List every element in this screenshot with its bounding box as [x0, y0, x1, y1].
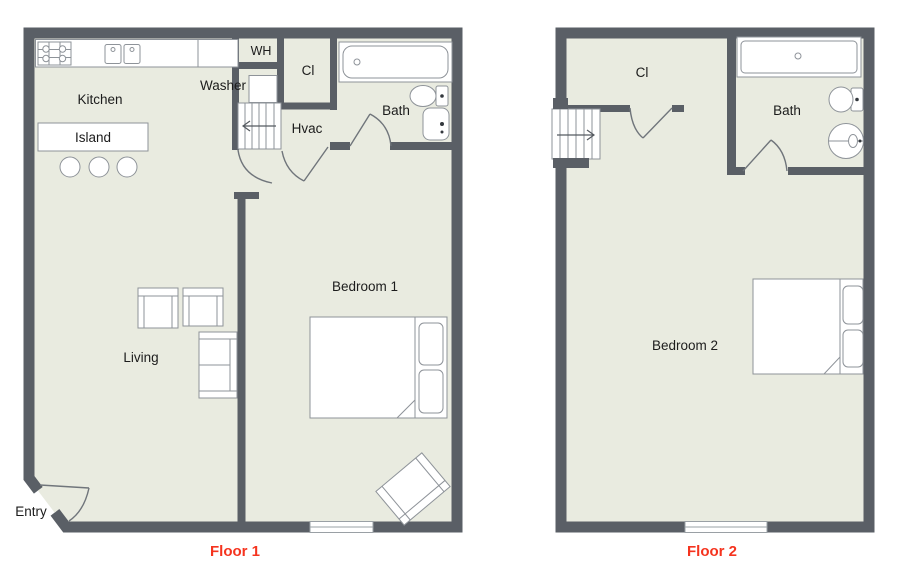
- kitchen-counter: [36, 40, 239, 68]
- kitchen-label: Kitchen: [77, 92, 122, 107]
- stool-icon: [60, 157, 80, 177]
- floorplan-canvas: Kitchen Island Washer WH Cl Hvac Bath Be…: [0, 0, 900, 577]
- bathtub-icon: [339, 42, 452, 82]
- stove-icon: [38, 42, 71, 65]
- floor-1-plan: Kitchen Island Washer WH Cl Hvac Bath Be…: [15, 28, 457, 560]
- bed-floor1-icon: [310, 317, 447, 418]
- toilet-floor1-icon: [410, 86, 448, 107]
- stool-icon: [89, 157, 109, 177]
- sink-floor2-icon: [829, 124, 864, 159]
- living-label: Living: [123, 350, 158, 365]
- floor-2-plan: Cl Bath Bedroom 2 Floor 2: [552, 28, 869, 560]
- bath-label: Bath: [382, 103, 410, 118]
- sink-floor1-icon: [423, 108, 449, 140]
- stairs-floor1-icon: [238, 103, 281, 149]
- wall-stub: [553, 98, 568, 109]
- floor1-caption: Floor 1: [210, 543, 260, 560]
- vanity-tub-icon: [737, 37, 861, 77]
- window-floor1-icon: [310, 522, 373, 533]
- bedroom1-label: Bedroom 1: [332, 279, 398, 294]
- washer-label: Washer: [200, 78, 247, 93]
- bedroom2-label: Bedroom 2: [652, 338, 718, 353]
- armchair-icon: [138, 288, 178, 328]
- window-floor2-icon: [685, 522, 767, 533]
- water-heater-label: WH: [251, 44, 272, 58]
- bath2-label: Bath: [773, 103, 801, 118]
- loveseat-icon: [199, 332, 237, 398]
- stool-icon: [117, 157, 137, 177]
- floorplan-svg: Kitchen Island Washer WH Cl Hvac Bath Be…: [0, 0, 900, 577]
- armchair-icon: [183, 288, 223, 326]
- floor2-caption: Floor 2: [687, 543, 737, 560]
- washer-icon: [249, 76, 277, 103]
- island-label: Island: [75, 130, 111, 145]
- stairs-floor2-icon: [552, 98, 600, 168]
- closet-label: Cl: [302, 63, 315, 78]
- closet2-label: Cl: [636, 65, 649, 80]
- wall-stub: [553, 158, 589, 168]
- entry-label: Entry: [15, 504, 47, 519]
- toilet-floor2-icon: [829, 87, 863, 112]
- bed-floor2-icon: [753, 279, 863, 374]
- hvac-label: Hvac: [292, 121, 323, 136]
